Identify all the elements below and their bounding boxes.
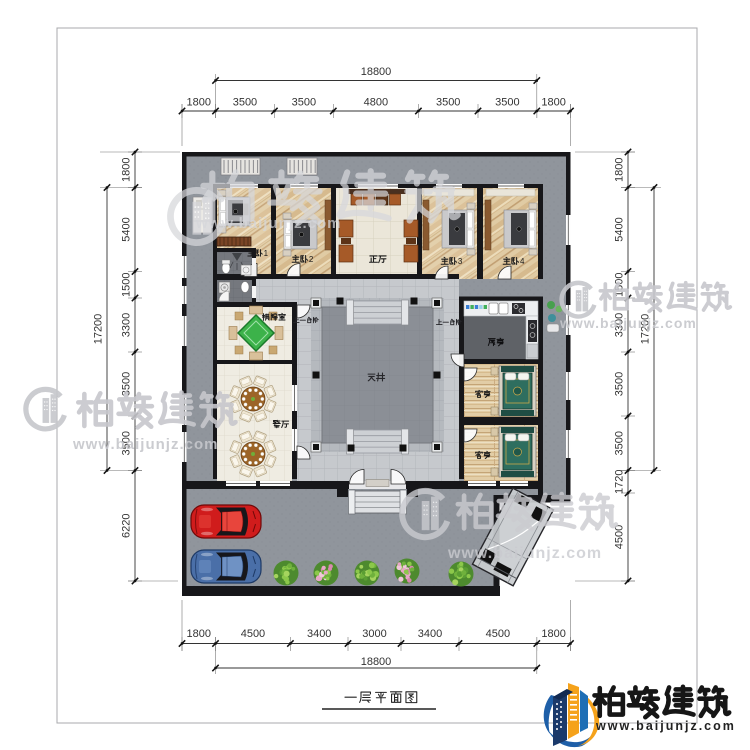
svg-text:3: 3 [458,257,463,266]
svg-text:3300: 3300 [121,313,133,337]
svg-text:4: 4 [520,257,525,266]
svg-text:1: 1 [264,249,269,258]
svg-text:3500: 3500 [292,97,316,109]
svg-text:4500: 4500 [486,628,510,640]
svg-text:17200: 17200 [93,314,105,345]
svg-text:1800: 1800 [541,97,565,109]
svg-text:2: 2 [309,255,314,264]
svg-text:1800: 1800 [541,628,565,640]
svg-text:18800: 18800 [361,66,392,78]
svg-text:5400: 5400 [614,217,626,241]
svg-text:1800: 1800 [121,158,133,182]
svg-text:1800: 1800 [187,97,211,109]
svg-text:www.baijunjz.com: www.baijunjz.com [447,545,602,562]
svg-text:1800: 1800 [187,628,211,640]
svg-text:www.baijunjz.com: www.baijunjz.com [559,315,697,331]
svg-text:www.baijunjz.com: www.baijunjz.com [195,215,341,232]
svg-text:1500: 1500 [121,273,133,297]
svg-text:5400: 5400 [121,217,133,241]
svg-text:3500: 3500 [614,372,626,396]
svg-text:3400: 3400 [418,628,442,640]
svg-text:18800: 18800 [361,656,392,668]
svg-text:www.baijunjz.com: www.baijunjz.com [595,719,736,733]
svg-text:3000: 3000 [362,628,386,640]
svg-text:3500: 3500 [436,97,460,109]
svg-text:3400: 3400 [307,628,331,640]
svg-text:4800: 4800 [364,97,388,109]
svg-text:3500: 3500 [233,97,257,109]
svg-text:1800: 1800 [614,158,626,182]
svg-text:www.baijunjz.com: www.baijunjz.com [72,436,218,453]
svg-text:4500: 4500 [614,525,626,549]
svg-text:3500: 3500 [614,431,626,455]
svg-text:3500: 3500 [495,97,519,109]
svg-text:1720: 1720 [614,470,626,494]
svg-text:6220: 6220 [121,514,133,538]
svg-text:4500: 4500 [241,628,265,640]
